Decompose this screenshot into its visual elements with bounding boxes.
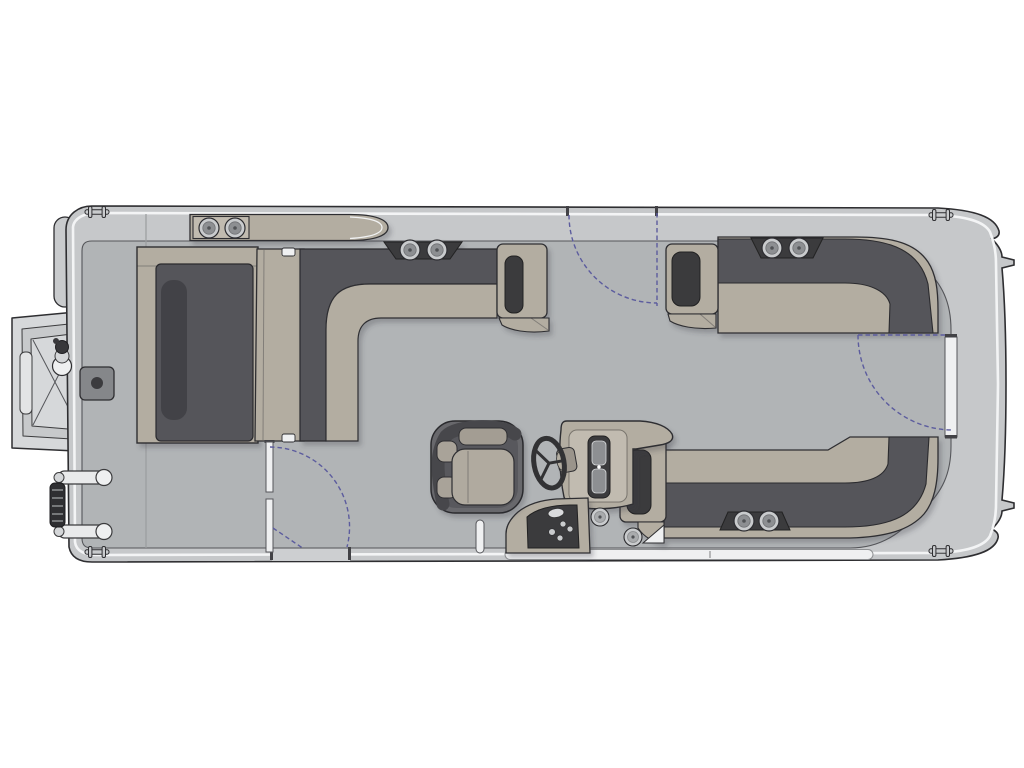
- cupholder: [759, 511, 779, 531]
- hinge: [282, 434, 295, 442]
- gate-post: [945, 435, 957, 439]
- ramp-step-pad: [20, 352, 32, 414]
- hinge: [282, 248, 295, 256]
- boat-floor-plan: [0, 0, 1024, 768]
- cupholder: [400, 240, 420, 260]
- gate-post: [566, 206, 569, 216]
- captains-chair: [431, 421, 523, 513]
- couch-bolster: [161, 280, 187, 420]
- bow-counter: [190, 215, 388, 241]
- cupholder: [762, 238, 782, 258]
- armrest-panel: [672, 252, 700, 306]
- cupholder: [734, 511, 754, 531]
- cupholder-console: [384, 242, 462, 259]
- ski-pylon: [476, 520, 484, 553]
- bow-deck-hatch: [80, 367, 114, 400]
- chair-seat: [452, 449, 514, 505]
- switch: [549, 529, 556, 536]
- cupholder: [199, 218, 219, 238]
- armrest-panel: [505, 256, 523, 313]
- cupholder: [225, 218, 245, 238]
- stern-bench: [620, 437, 938, 543]
- midship-lounge: [666, 237, 938, 333]
- bow-port-couch: [137, 247, 258, 443]
- floor-plan-drawing: [0, 0, 1024, 768]
- cupholder: [789, 238, 809, 258]
- gate-post: [348, 547, 351, 560]
- stern-gate-opening: [945, 337, 957, 437]
- switch: [560, 521, 566, 527]
- walkthrough-backrest: [255, 248, 304, 442]
- switch: [557, 535, 563, 541]
- gauge: [592, 441, 606, 465]
- gate-post: [945, 334, 957, 338]
- chair-headrest: [459, 428, 507, 445]
- ignition: [597, 465, 601, 469]
- gauge: [592, 469, 606, 493]
- switch: [567, 526, 573, 532]
- port-gate-opening: [272, 549, 350, 561]
- cupholder: [427, 240, 447, 260]
